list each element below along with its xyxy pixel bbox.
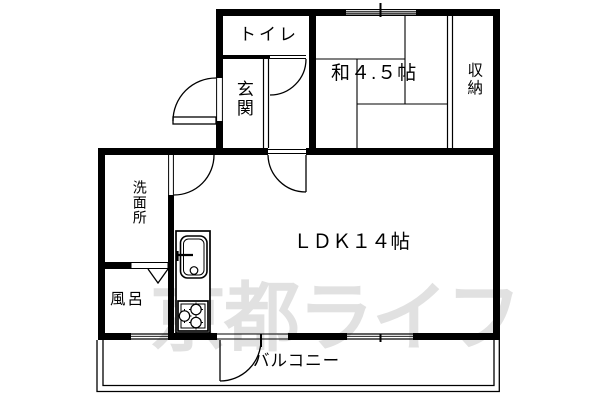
room-label-balcony: バルコニー	[253, 353, 340, 370]
window-north	[346, 3, 416, 17]
entrance-door-swing-arc	[173, 78, 216, 121]
room-label-entrance: 玄関	[234, 80, 252, 118]
toilet-door	[270, 56, 306, 96]
toilet-door-swing-arc	[270, 59, 306, 95]
balcony-door-opening	[217, 334, 288, 347]
entrance-door	[173, 78, 222, 124]
floor-plan: 京都ライフ	[0, 0, 600, 400]
room-label-washroom: 洗面所	[132, 180, 147, 225]
bath-door	[131, 263, 168, 284]
window-bath	[131, 334, 173, 339]
closet-sliding-door	[448, 16, 453, 148]
washroom-door	[169, 155, 214, 195]
entrance-hall-divider	[264, 59, 269, 148]
room-label-toilet: トイレ	[239, 26, 299, 44]
gas-stove	[178, 301, 209, 331]
window-ldk-south	[347, 334, 413, 342]
kitchen-sink	[176, 236, 207, 278]
room-label-ldk: ＬＤＫ１４帖	[293, 232, 410, 252]
hall-door	[268, 150, 306, 193]
room-label-closet: 収納	[465, 62, 481, 97]
room-label-japanese-room: 和４.５帖	[331, 64, 417, 84]
hall-door-swing-arc	[268, 155, 306, 192]
linework-layer	[0, 0, 600, 400]
washroom-door-swing-arc	[174, 155, 214, 195]
room-label-bath: 風呂	[110, 292, 145, 308]
entrance-door-leaf	[173, 117, 216, 124]
bath-door-triangle	[148, 269, 168, 283]
